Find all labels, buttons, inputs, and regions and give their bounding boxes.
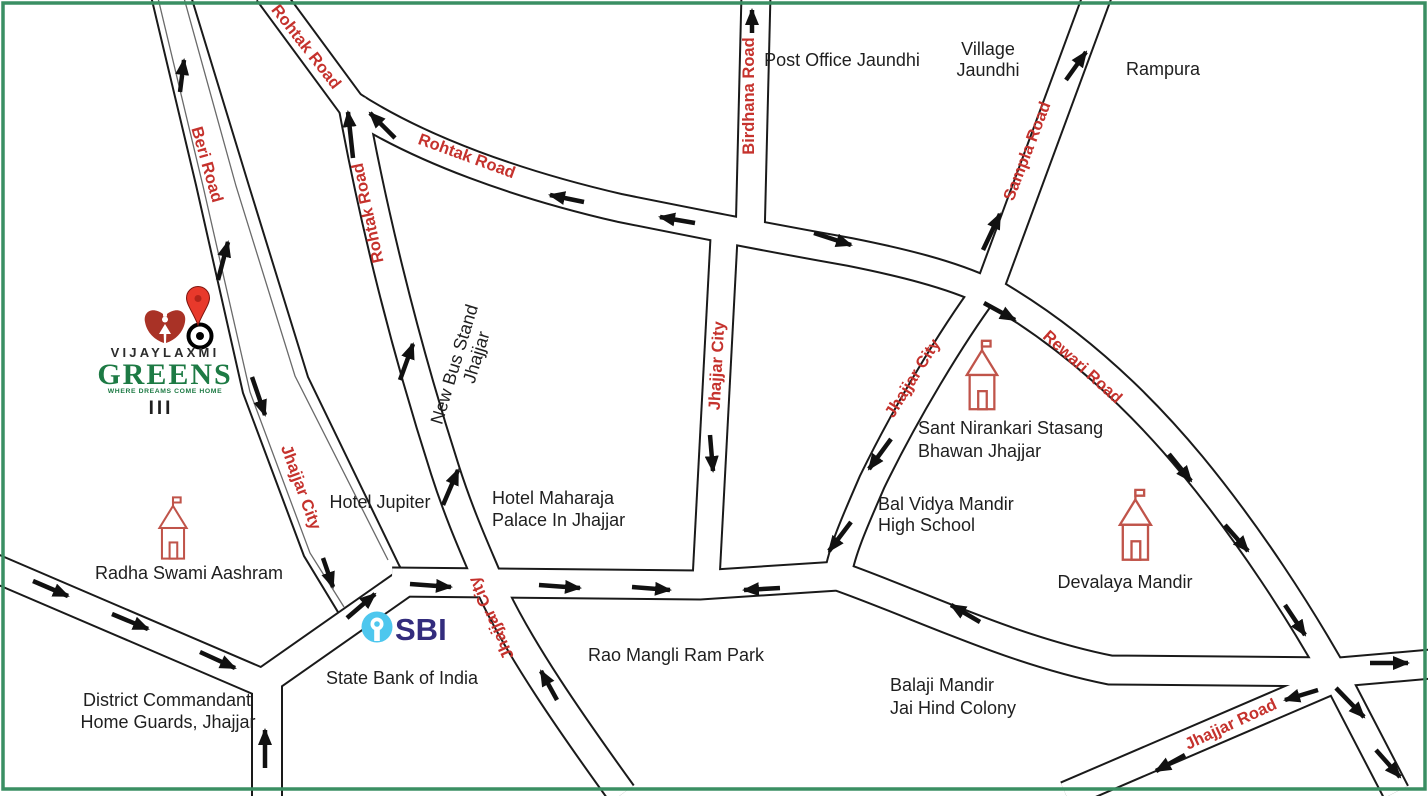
place-label-sant-nirankari: Sant Nirankari Stasang xyxy=(918,418,1103,438)
brand-tagline: WHERE DREAMS COME HOME xyxy=(108,388,222,395)
temple-icon-devalaya-mandir xyxy=(1120,490,1151,560)
place-label-village-jaundhi: Jaundhi xyxy=(956,60,1019,80)
place-label-rampura: Rampura xyxy=(1126,59,1201,79)
place-label-bal-vidya-mandir: High School xyxy=(878,515,975,535)
place-label-post-office-jaundhi: Post Office Jaundhi xyxy=(764,50,920,70)
place-label-sant-nirankari: Bhawan Jhajjar xyxy=(918,441,1041,461)
place-label-district-commandant: Home Guards, Jhajjar xyxy=(80,712,255,732)
place-label-radha-swami-aashram: Radha Swami Aashram xyxy=(95,563,283,583)
place-label-village-jaundhi: Village xyxy=(961,39,1015,59)
brand-phase: III xyxy=(149,398,174,419)
map-canvas: Beri Road Rohtak Road Rohtak Road Rohtak… xyxy=(0,0,1428,796)
place-label-hotel-maharaja: Palace In Jhajjar xyxy=(492,510,625,530)
place-label-hotel-maharaja: Hotel Maharaja xyxy=(492,488,615,508)
temple-icon-radha-swami xyxy=(159,497,186,558)
direction-arrow xyxy=(539,585,580,588)
vijaylaxmi-greens-logo: VIJAYLAXMI GREENS WHERE DREAMS COME HOME… xyxy=(97,287,232,420)
place-label-balaji-mandir: Balaji Mandir xyxy=(890,675,994,695)
sbi-keyhole-stem xyxy=(374,627,380,641)
road-label-birdhana-road: Birdhana Road xyxy=(740,37,758,154)
temple-icon-sant-nirankari xyxy=(967,341,997,409)
place-label-state-bank-of-india: State Bank of India xyxy=(326,668,479,688)
lotus-flower-icon xyxy=(145,310,186,343)
direction-arrow xyxy=(632,587,670,590)
sbi-logo-text: SBI xyxy=(395,612,447,647)
place-label-devalaya-mandir: Devalaya Mandir xyxy=(1057,572,1192,592)
place-label-rao-mangli-ram-park: Rao Mangli Ram Park xyxy=(588,645,765,665)
location-pin-icon xyxy=(187,287,210,326)
brand-main-name: GREENS xyxy=(97,358,232,391)
sbi-keyhole-dot xyxy=(374,621,380,627)
place-label-hotel-jupiter: Hotel Jupiter xyxy=(329,492,430,512)
place-label-bal-vidya-mandir: Bal Vidya Mandir xyxy=(878,494,1014,514)
place-label-district-commandant: District Commandant xyxy=(83,690,251,710)
place-label-balaji-mandir: Jai Hind Colony xyxy=(890,698,1016,718)
direction-arrow xyxy=(410,584,451,587)
direction-arrow xyxy=(710,435,713,471)
location-map: Beri Road Rohtak Road Rohtak Road Rohtak… xyxy=(0,0,1428,796)
road-label-rohtak-road-branch: Rohtak Road xyxy=(268,1,345,92)
direction-arrow xyxy=(744,588,780,590)
